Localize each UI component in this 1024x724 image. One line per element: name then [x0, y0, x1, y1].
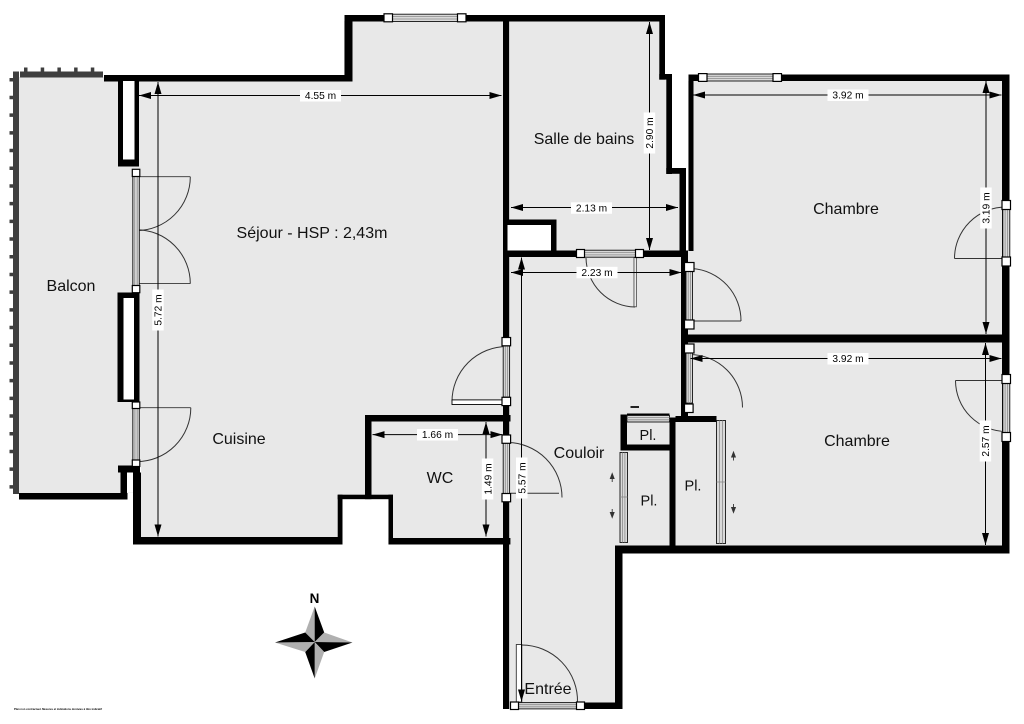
svg-text:2.90 m: 2.90 m	[645, 117, 656, 148]
svg-text:3.19 m: 3.19 m	[982, 192, 993, 223]
svg-text:1.49 m: 1.49 m	[483, 463, 494, 494]
svg-text:4.55 m: 4.55 m	[305, 91, 336, 102]
svg-text:Chambre: Chambre	[824, 433, 890, 450]
svg-text:Cuisine: Cuisine	[212, 431, 265, 448]
svg-text:Pl.: Pl.	[685, 479, 702, 495]
svg-text:Séjour - HSP : 2,43m: Séjour - HSP : 2,43m	[237, 225, 388, 242]
svg-text:WC: WC	[427, 470, 454, 487]
svg-text:Pl.: Pl.	[640, 428, 657, 444]
svg-text:5.72 m: 5.72 m	[154, 294, 165, 325]
svg-text:Couloir: Couloir	[554, 445, 605, 462]
svg-text:2.23 m: 2.23 m	[581, 268, 612, 279]
svg-text:Chambre: Chambre	[813, 201, 879, 218]
svg-text:3.92 m: 3.92 m	[832, 354, 863, 365]
svg-text:2.13 m: 2.13 m	[576, 204, 607, 215]
svg-text:2.57 m: 2.57 m	[981, 425, 992, 456]
svg-text:Balcon: Balcon	[47, 278, 96, 295]
svg-text:3.92 m: 3.92 m	[832, 91, 863, 102]
svg-text:Plan non contractuel. Mesures: Plan non contractuel. Mesures et indicat…	[14, 707, 102, 711]
svg-text:Salle de bains: Salle de bains	[534, 131, 635, 148]
svg-text:5.57 m: 5.57 m	[518, 462, 529, 493]
svg-text:N: N	[310, 591, 320, 606]
svg-text:Pl.: Pl.	[641, 494, 658, 510]
svg-text:Entrée: Entrée	[524, 681, 571, 698]
svg-text:1.66 m: 1.66 m	[422, 430, 453, 441]
